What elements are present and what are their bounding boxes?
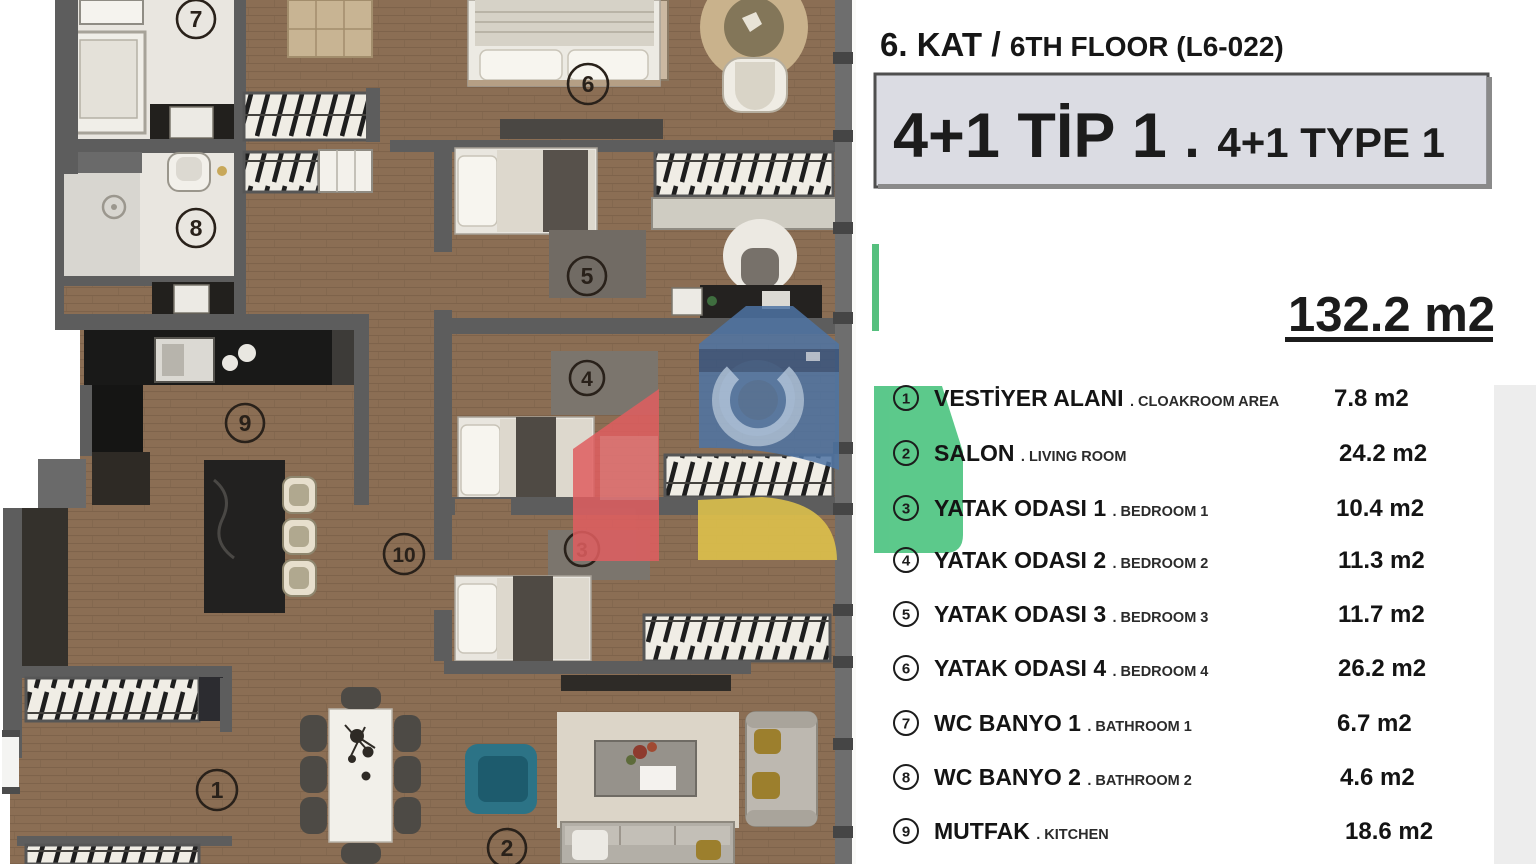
- svg-text:4: 4: [902, 553, 911, 570]
- svg-text:1: 1: [902, 391, 910, 408]
- svg-text:6: 6: [582, 71, 595, 97]
- svg-text:11.3 m2: 11.3 m2: [1338, 547, 1425, 574]
- svg-text:2: 2: [902, 446, 910, 463]
- svg-text:7.8 m2: 7.8 m2: [1334, 385, 1409, 412]
- svg-text:5: 5: [902, 607, 910, 624]
- svg-text:8: 8: [190, 215, 203, 241]
- svg-text:18.6 m2: 18.6 m2: [1345, 818, 1433, 845]
- svg-text:11.7 m2: 11.7 m2: [1338, 601, 1425, 628]
- svg-text:132.2 m2: 132.2 m2: [1288, 288, 1495, 342]
- svg-text:4.6 m2: 4.6 m2: [1340, 764, 1415, 791]
- svg-text:6.7 m2: 6.7 m2: [1337, 710, 1412, 737]
- svg-text:5: 5: [581, 263, 594, 289]
- svg-text:2: 2: [501, 835, 514, 861]
- svg-text:1: 1: [211, 777, 224, 803]
- svg-text:7: 7: [190, 6, 203, 32]
- svg-text:6. KAT / 6TH FLOOR (L6-022): 6. KAT / 6TH FLOOR (L6-022): [880, 26, 1284, 64]
- svg-text:3: 3: [902, 501, 910, 518]
- svg-text:10.4 m2: 10.4 m2: [1336, 495, 1424, 522]
- svg-text:8: 8: [902, 770, 910, 787]
- svg-text:7: 7: [902, 716, 910, 733]
- svg-text:6: 6: [902, 661, 910, 678]
- svg-text:4: 4: [581, 368, 593, 391]
- svg-text:26.2 m2: 26.2 m2: [1338, 655, 1426, 682]
- svg-text:10: 10: [392, 544, 415, 567]
- svg-text:24.2 m2: 24.2 m2: [1339, 440, 1427, 467]
- svg-text:9: 9: [902, 824, 910, 841]
- svg-text:9: 9: [239, 410, 252, 436]
